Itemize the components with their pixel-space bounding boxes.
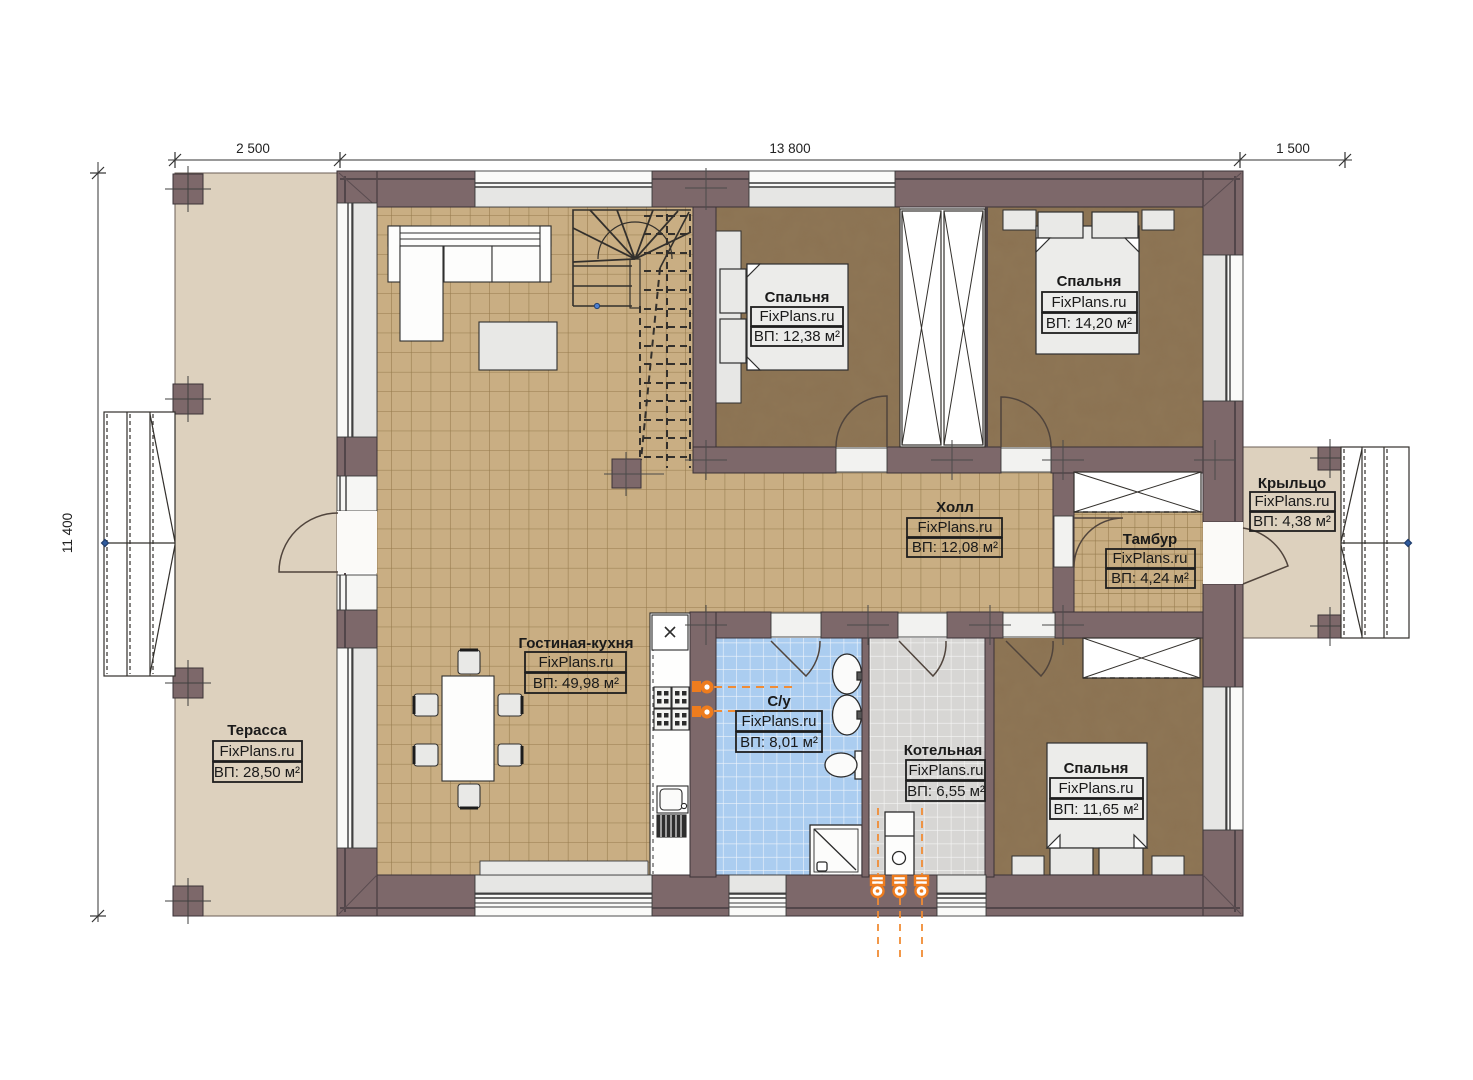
svg-text:ВП: 14,20 м²: ВП: 14,20 м² (1046, 315, 1132, 332)
svg-text:С/у: С/у (767, 693, 791, 710)
svg-text:Спальня: Спальня (1057, 273, 1122, 290)
svg-text:Тамбур: Тамбур (1123, 531, 1177, 548)
svg-text:ВП: 28,50 м²: ВП: 28,50 м² (214, 764, 300, 781)
svg-text:FixPlans.ru: FixPlans.ru (759, 308, 834, 325)
svg-text:FixPlans.ru: FixPlans.ru (1112, 550, 1187, 567)
svg-text:ВП: 4,24 м²: ВП: 4,24 м² (1111, 570, 1189, 587)
svg-text:11 400: 11 400 (60, 513, 75, 553)
svg-text:FixPlans.ru: FixPlans.ru (1058, 780, 1133, 797)
svg-text:1 500: 1 500 (1276, 141, 1310, 156)
svg-text:FixPlans.ru: FixPlans.ru (219, 743, 294, 760)
svg-text:FixPlans.ru: FixPlans.ru (1254, 493, 1329, 510)
svg-text:ВП: 12,38 м²: ВП: 12,38 м² (754, 328, 840, 345)
svg-text:FixPlans.ru: FixPlans.ru (917, 519, 992, 536)
svg-text:ВП: 4,38 м²: ВП: 4,38 м² (1253, 513, 1331, 530)
svg-text:ВП: 11,65 м²: ВП: 11,65 м² (1053, 801, 1138, 818)
svg-text:FixPlans.ru: FixPlans.ru (1051, 294, 1126, 311)
svg-text:ВП: 12,08 м²: ВП: 12,08 м² (912, 539, 998, 556)
svg-text:Холл: Холл (936, 499, 974, 516)
svg-text:ВП: 49,98 м²: ВП: 49,98 м² (533, 675, 619, 692)
svg-text:13 800: 13 800 (769, 141, 810, 156)
svg-text:ВП: 8,01 м²: ВП: 8,01 м² (740, 734, 818, 751)
svg-text:2 500: 2 500 (236, 141, 270, 156)
svg-text:FixPlans.ru: FixPlans.ru (908, 762, 983, 779)
svg-text:ВП: 6,55 м²: ВП: 6,55 м² (907, 783, 985, 800)
svg-text:Котельная: Котельная (904, 742, 983, 759)
svg-text:Спальня: Спальня (765, 289, 830, 306)
svg-text:Спальня: Спальня (1064, 760, 1129, 777)
svg-text:Крыльцо: Крыльцо (1258, 475, 1326, 492)
svg-text:Гостиная-кухня: Гостиная-кухня (519, 635, 634, 652)
svg-text:FixPlans.ru: FixPlans.ru (741, 713, 816, 730)
svg-text:FixPlans.ru: FixPlans.ru (538, 654, 613, 671)
svg-text:Терасса: Терасса (227, 722, 287, 739)
